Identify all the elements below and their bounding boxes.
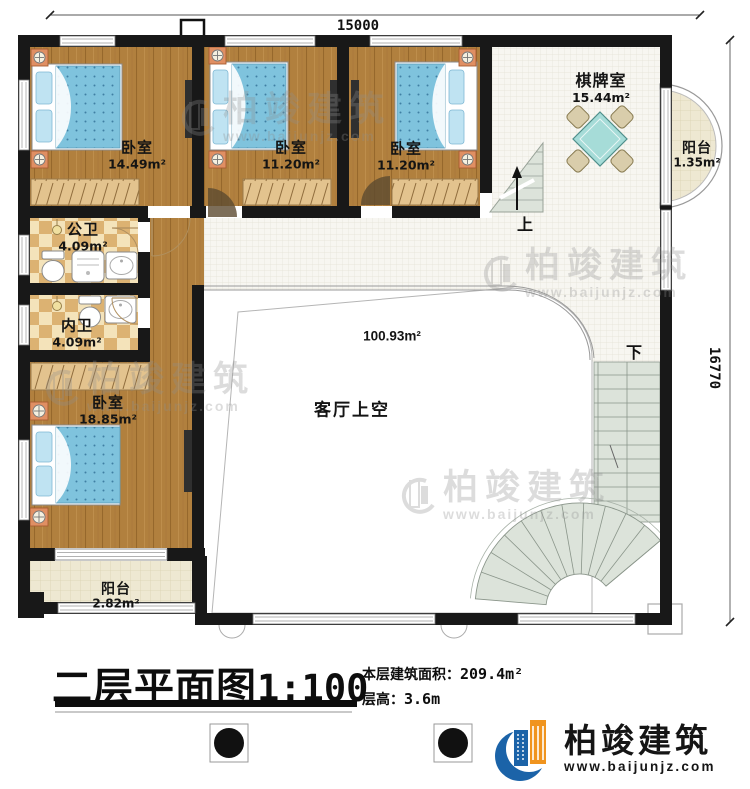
bedroom3-label: 卧室 11.20m² [377, 142, 435, 173]
balcony-door [661, 88, 671, 205]
window [253, 614, 435, 624]
title-underline-thin [55, 711, 352, 713]
chess-table-set [565, 104, 634, 173]
tv-icon [351, 80, 359, 138]
floor-plan-page: 柏竣建筑 www.baijunjz.com 柏竣建筑 www.baijunjz.… [0, 0, 750, 789]
nightstand-lamp-icon [30, 508, 48, 526]
window [19, 305, 29, 345]
chess-room-label: 棋牌室 15.44m² [572, 73, 630, 105]
tv-icon [184, 430, 192, 492]
dimension-right: 16770 [706, 347, 722, 389]
nightstand-lamp-icon [30, 402, 48, 420]
inner-bath-label: 内卫 4.09m² [52, 319, 101, 350]
window [19, 440, 29, 520]
nightstand-lamp-icon [209, 151, 226, 168]
brand-logo-icon [494, 716, 556, 782]
bottom-balcony-label: 阳台 2.82m² [92, 581, 139, 610]
public-bath-label: 公卫 4.09m² [58, 223, 107, 254]
column-symbols [210, 724, 472, 762]
floor-area-value: 209.4m² [460, 665, 523, 683]
bed-bedroom1 [32, 64, 122, 150]
floor-area-label: 本层建筑面积： [362, 664, 460, 684]
living-void-area-label: 100.93m² [363, 329, 421, 344]
bed-bedroom3 [395, 62, 477, 150]
toilet-icon [42, 251, 64, 282]
plan-stats: 本层建筑面积： 209.4m² 层高： 3.6m [362, 664, 523, 714]
shower-icon [72, 251, 104, 282]
stairs-up-label: 上 [517, 211, 533, 235]
wardrobe [31, 363, 149, 390]
wardrobe [392, 179, 478, 205]
tv-icon [185, 80, 192, 138]
nightstand-lamp-icon [31, 49, 48, 66]
bedroom2-label: 卧室 11.20m² [262, 141, 320, 172]
bedroom4-label: 卧室 18.85m² [79, 396, 137, 427]
nightstand-lamp-icon [209, 47, 226, 64]
window [661, 210, 671, 290]
window [60, 36, 115, 46]
bedroom1-label: 卧室 14.49m² [108, 141, 166, 172]
tv-icon [330, 80, 337, 138]
sink-icon [105, 296, 136, 323]
stairs-down-label: 下 [626, 339, 642, 363]
brand-logo: 柏竣建筑 www.baijunjz.com [494, 716, 716, 782]
wardrobe [31, 179, 139, 205]
bed-bedroom4 [32, 425, 120, 505]
right-balcony-label: 阳台 1.35m² [673, 140, 720, 169]
brand-name: 柏竣建筑 [564, 724, 712, 759]
sink-icon [106, 252, 137, 279]
window [225, 36, 315, 46]
dimension-top: 15000 [337, 18, 379, 34]
brand-url: www.baijunjz.com [564, 759, 716, 774]
living-void-name-label: 客厅上空 [314, 396, 390, 421]
nightstand-lamp-icon [459, 151, 476, 168]
title-underline [55, 700, 357, 707]
floor-height-label: 层高： [362, 689, 404, 709]
window [19, 80, 29, 150]
floor-height-value: 3.6m [404, 690, 440, 708]
window [55, 549, 167, 560]
bed-bedroom2 [210, 62, 288, 150]
window [518, 614, 635, 624]
window [370, 36, 462, 46]
wardrobe [243, 179, 331, 205]
window [19, 235, 29, 275]
corridor-floor [204, 218, 660, 290]
nightstand-lamp-icon [459, 49, 476, 66]
nightstand-lamp-icon [31, 151, 48, 168]
